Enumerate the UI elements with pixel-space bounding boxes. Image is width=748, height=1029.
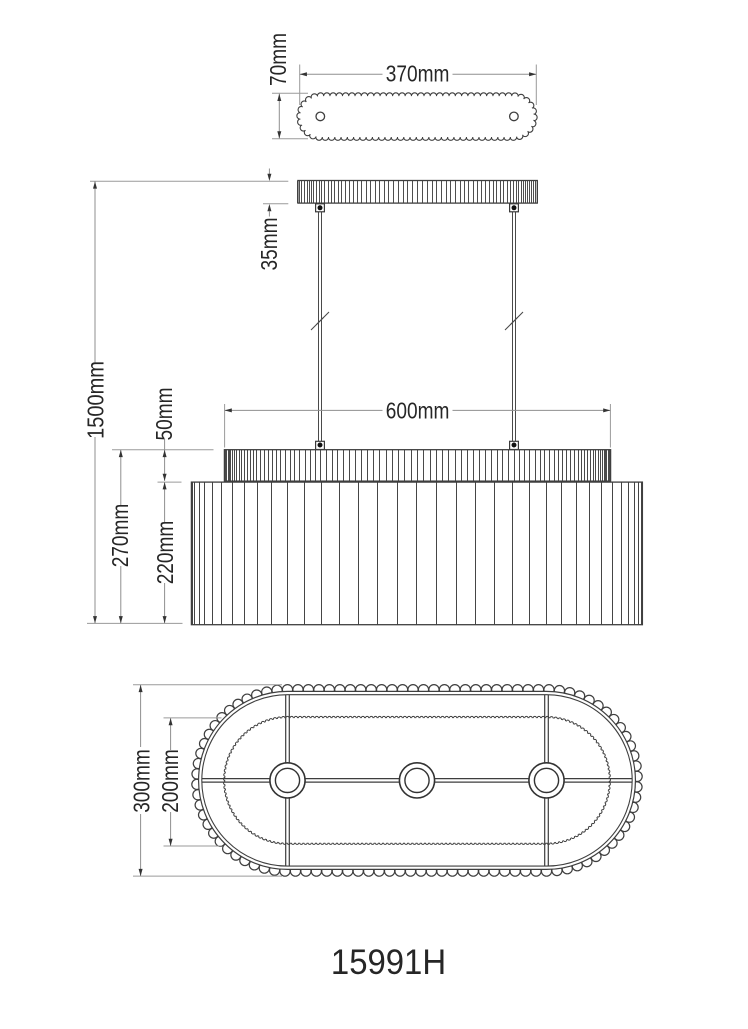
svg-text:270mm: 270mm <box>108 504 133 568</box>
svg-text:70mm: 70mm <box>266 33 291 86</box>
svg-text:200mm: 200mm <box>158 749 183 813</box>
svg-text:1500mm: 1500mm <box>82 361 109 439</box>
svg-text:50mm: 50mm <box>153 387 178 440</box>
svg-text:35mm: 35mm <box>257 217 282 270</box>
svg-text:370mm: 370mm <box>386 62 450 87</box>
svg-text:220mm: 220mm <box>153 521 178 585</box>
svg-text:300mm: 300mm <box>130 749 155 813</box>
svg-text:15991H: 15991H <box>331 943 446 982</box>
svg-text:600mm: 600mm <box>386 399 450 424</box>
